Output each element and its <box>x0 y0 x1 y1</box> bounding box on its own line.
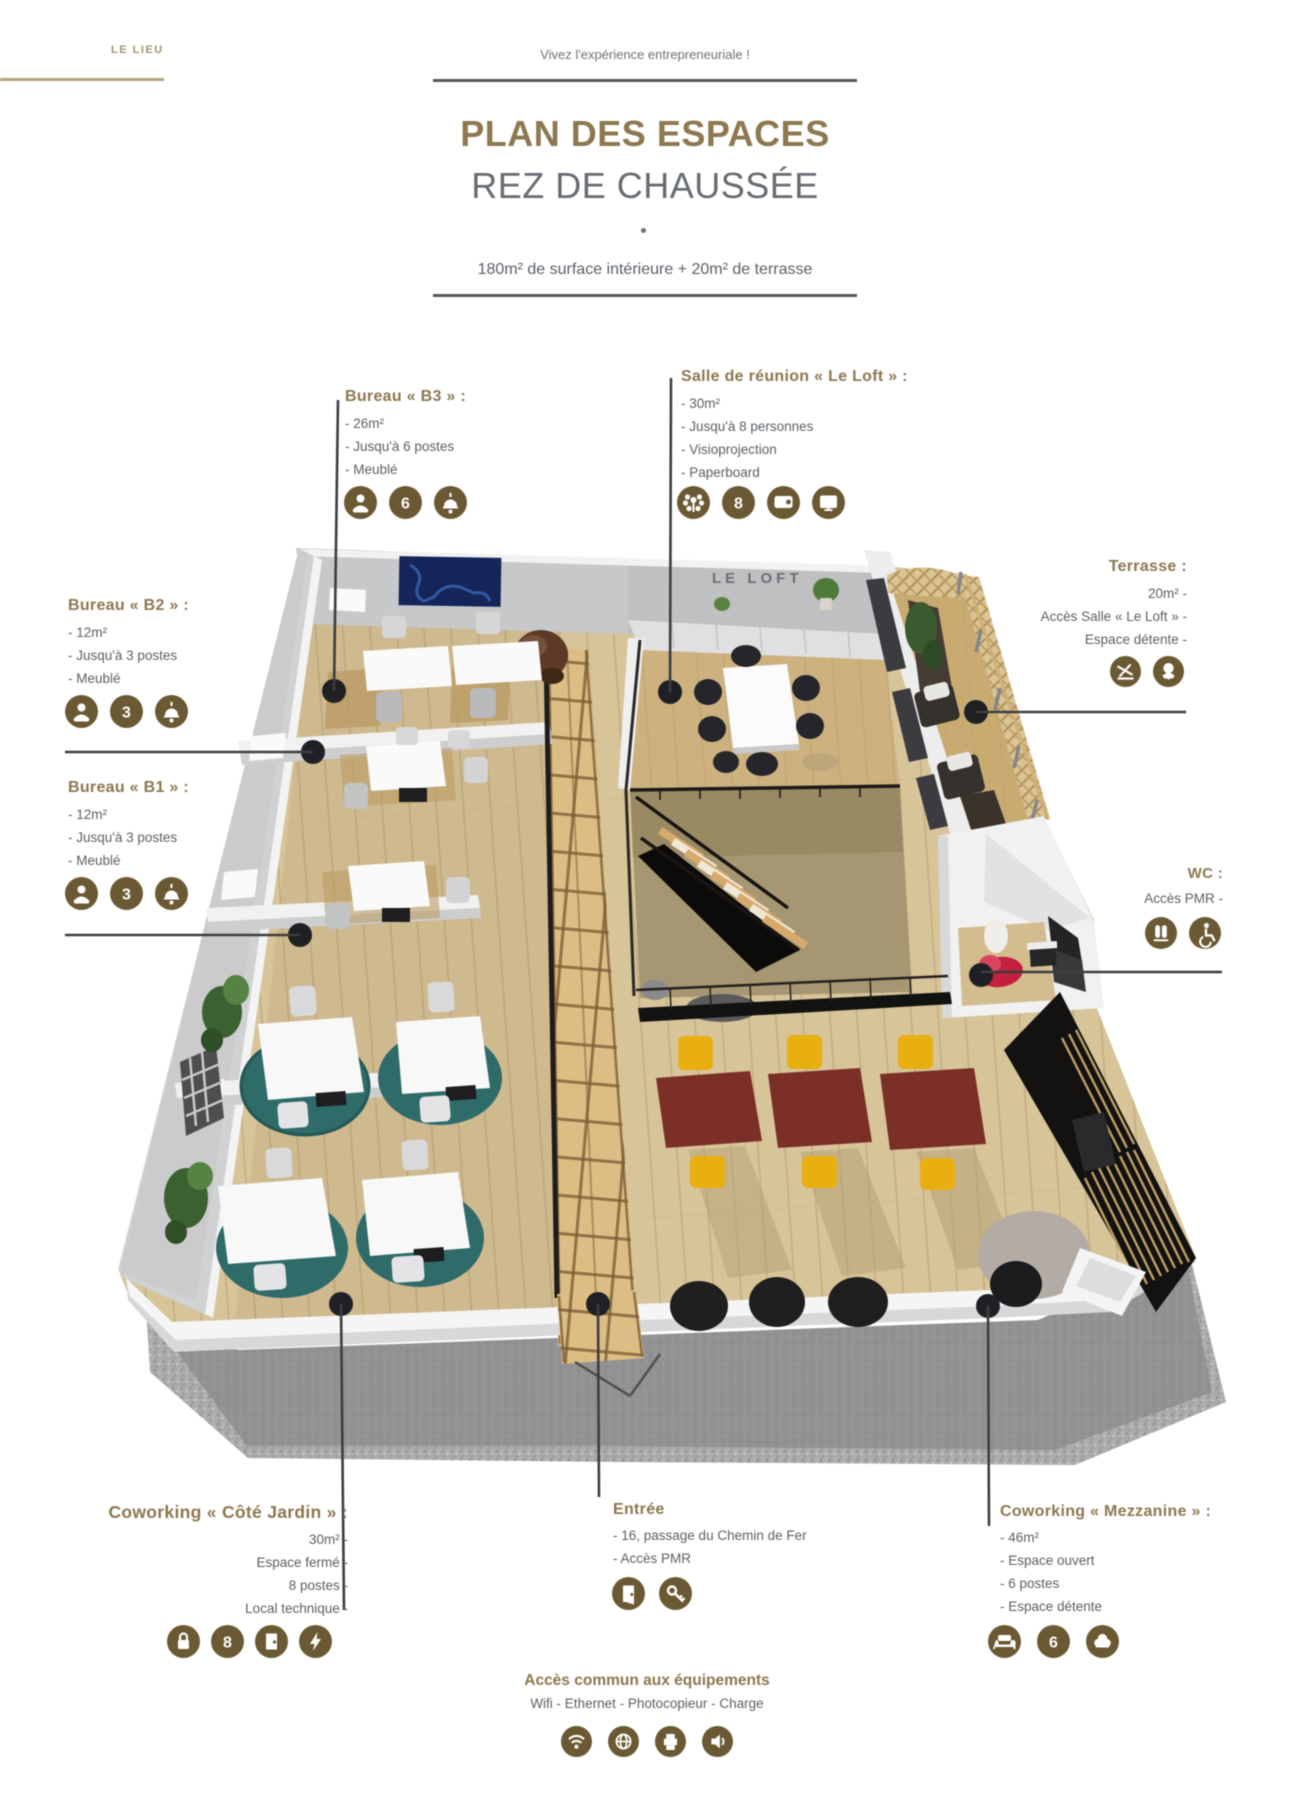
svg-text:6: 6 <box>1049 1635 1058 1652</box>
svg-text:3: 3 <box>122 887 131 904</box>
svg-text:LE LOFT: LE LOFT <box>712 570 803 587</box>
svg-text:6: 6 <box>401 496 410 513</box>
svg-text:8: 8 <box>734 496 743 513</box>
svg-text:3: 3 <box>122 705 131 722</box>
svg-text:8: 8 <box>223 1635 232 1652</box>
